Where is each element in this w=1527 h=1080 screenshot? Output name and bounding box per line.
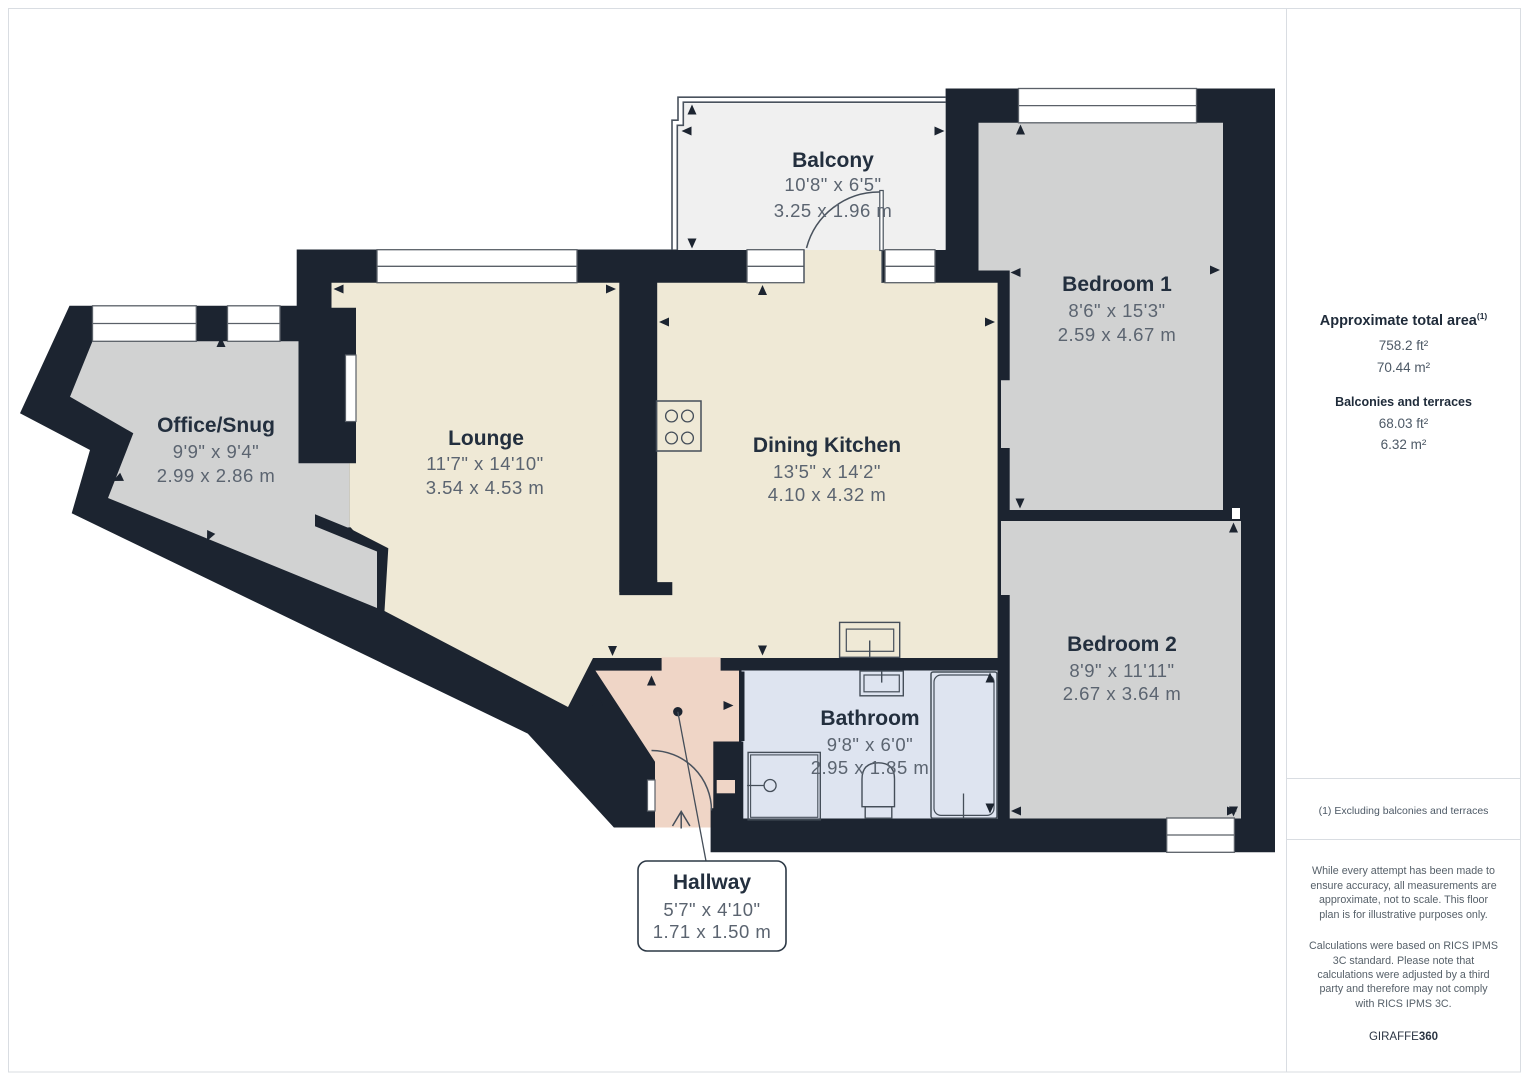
svg-text:3C standard. Please note that: 3C standard. Please note that: [1333, 955, 1474, 967]
svg-text:2.95 x 1.85 m: 2.95 x 1.85 m: [811, 757, 930, 778]
svg-text:Balcony: Balcony: [792, 149, 874, 172]
svg-text:70.44 m²: 70.44 m²: [1377, 360, 1431, 375]
svg-text:Bedroom 1: Bedroom 1: [1062, 273, 1172, 296]
svg-text:13'5" x 14'2": 13'5" x 14'2": [773, 461, 881, 482]
svg-text:8'9" x 11'11": 8'9" x 11'11": [1069, 660, 1174, 681]
svg-text:While every attempt has been m: While every attempt has been made to: [1312, 865, 1495, 877]
svg-text:6.32 m²: 6.32 m²: [1381, 437, 1427, 452]
svg-text:Hallway: Hallway: [673, 871, 752, 894]
svg-text:68.03 ft²: 68.03 ft²: [1379, 416, 1429, 431]
svg-text:Bedroom 2: Bedroom 2: [1067, 633, 1177, 656]
svg-text:plan is for illustrative purpo: plan is for illustrative purposes only.: [1319, 909, 1488, 921]
svg-text:Dining Kitchen: Dining Kitchen: [753, 434, 901, 457]
svg-text:Bathroom: Bathroom: [820, 707, 919, 730]
svg-text:approximate, not to scale. Thi: approximate, not to scale. This floor: [1319, 894, 1489, 906]
svg-text:4.10 x 4.32 m: 4.10 x 4.32 m: [768, 484, 887, 505]
svg-text:11'7" x 14'10": 11'7" x 14'10": [426, 453, 543, 474]
svg-text:with RICS IPMS 3C.: with RICS IPMS 3C.: [1354, 998, 1451, 1010]
svg-text:Balconies and terraces: Balconies and terraces: [1335, 395, 1472, 409]
svg-text:(1) Excluding balconies and te: (1) Excluding balconies and terraces: [1319, 805, 1489, 817]
svg-text:GIRAFFE360: GIRAFFE360: [1369, 1031, 1438, 1043]
svg-text:10'8" x 6'5": 10'8" x 6'5": [784, 174, 881, 195]
svg-text:5'7" x 4'10": 5'7" x 4'10": [663, 899, 760, 920]
svg-text:Approximate total area(1): Approximate total area(1): [1320, 311, 1488, 329]
svg-text:calculations were adjusted by: calculations were adjusted by a third: [1317, 969, 1489, 981]
svg-text:Office/Snug: Office/Snug: [157, 414, 275, 437]
svg-text:ensure accuracy, all measureme: ensure accuracy, all measurements are: [1310, 880, 1496, 892]
svg-text:Calculations were based on RIC: Calculations were based on RICS IPMS: [1309, 940, 1498, 952]
svg-text:758.2 ft²: 758.2 ft²: [1379, 338, 1429, 353]
svg-text:Lounge: Lounge: [448, 427, 524, 450]
svg-text:3.25 x 1.96 m: 3.25 x 1.96 m: [774, 200, 893, 221]
svg-text:9'8" x 6'0": 9'8" x 6'0": [827, 734, 913, 755]
svg-text:3.54 x 4.53 m: 3.54 x 4.53 m: [426, 477, 545, 498]
svg-text:8'6" x 15'3": 8'6" x 15'3": [1068, 300, 1165, 321]
svg-text:party and therefore may not co: party and therefore may not comply: [1319, 983, 1488, 995]
svg-text:2.59 x 4.67 m: 2.59 x 4.67 m: [1058, 324, 1177, 345]
svg-text:2.67 x 3.64 m: 2.67 x 3.64 m: [1063, 683, 1182, 704]
svg-text:9'9" x 9'4": 9'9" x 9'4": [173, 441, 259, 462]
svg-text:1.71 x 1.50 m: 1.71 x 1.50 m: [653, 921, 772, 942]
svg-text:2.99 x 2.86 m: 2.99 x 2.86 m: [157, 465, 276, 486]
